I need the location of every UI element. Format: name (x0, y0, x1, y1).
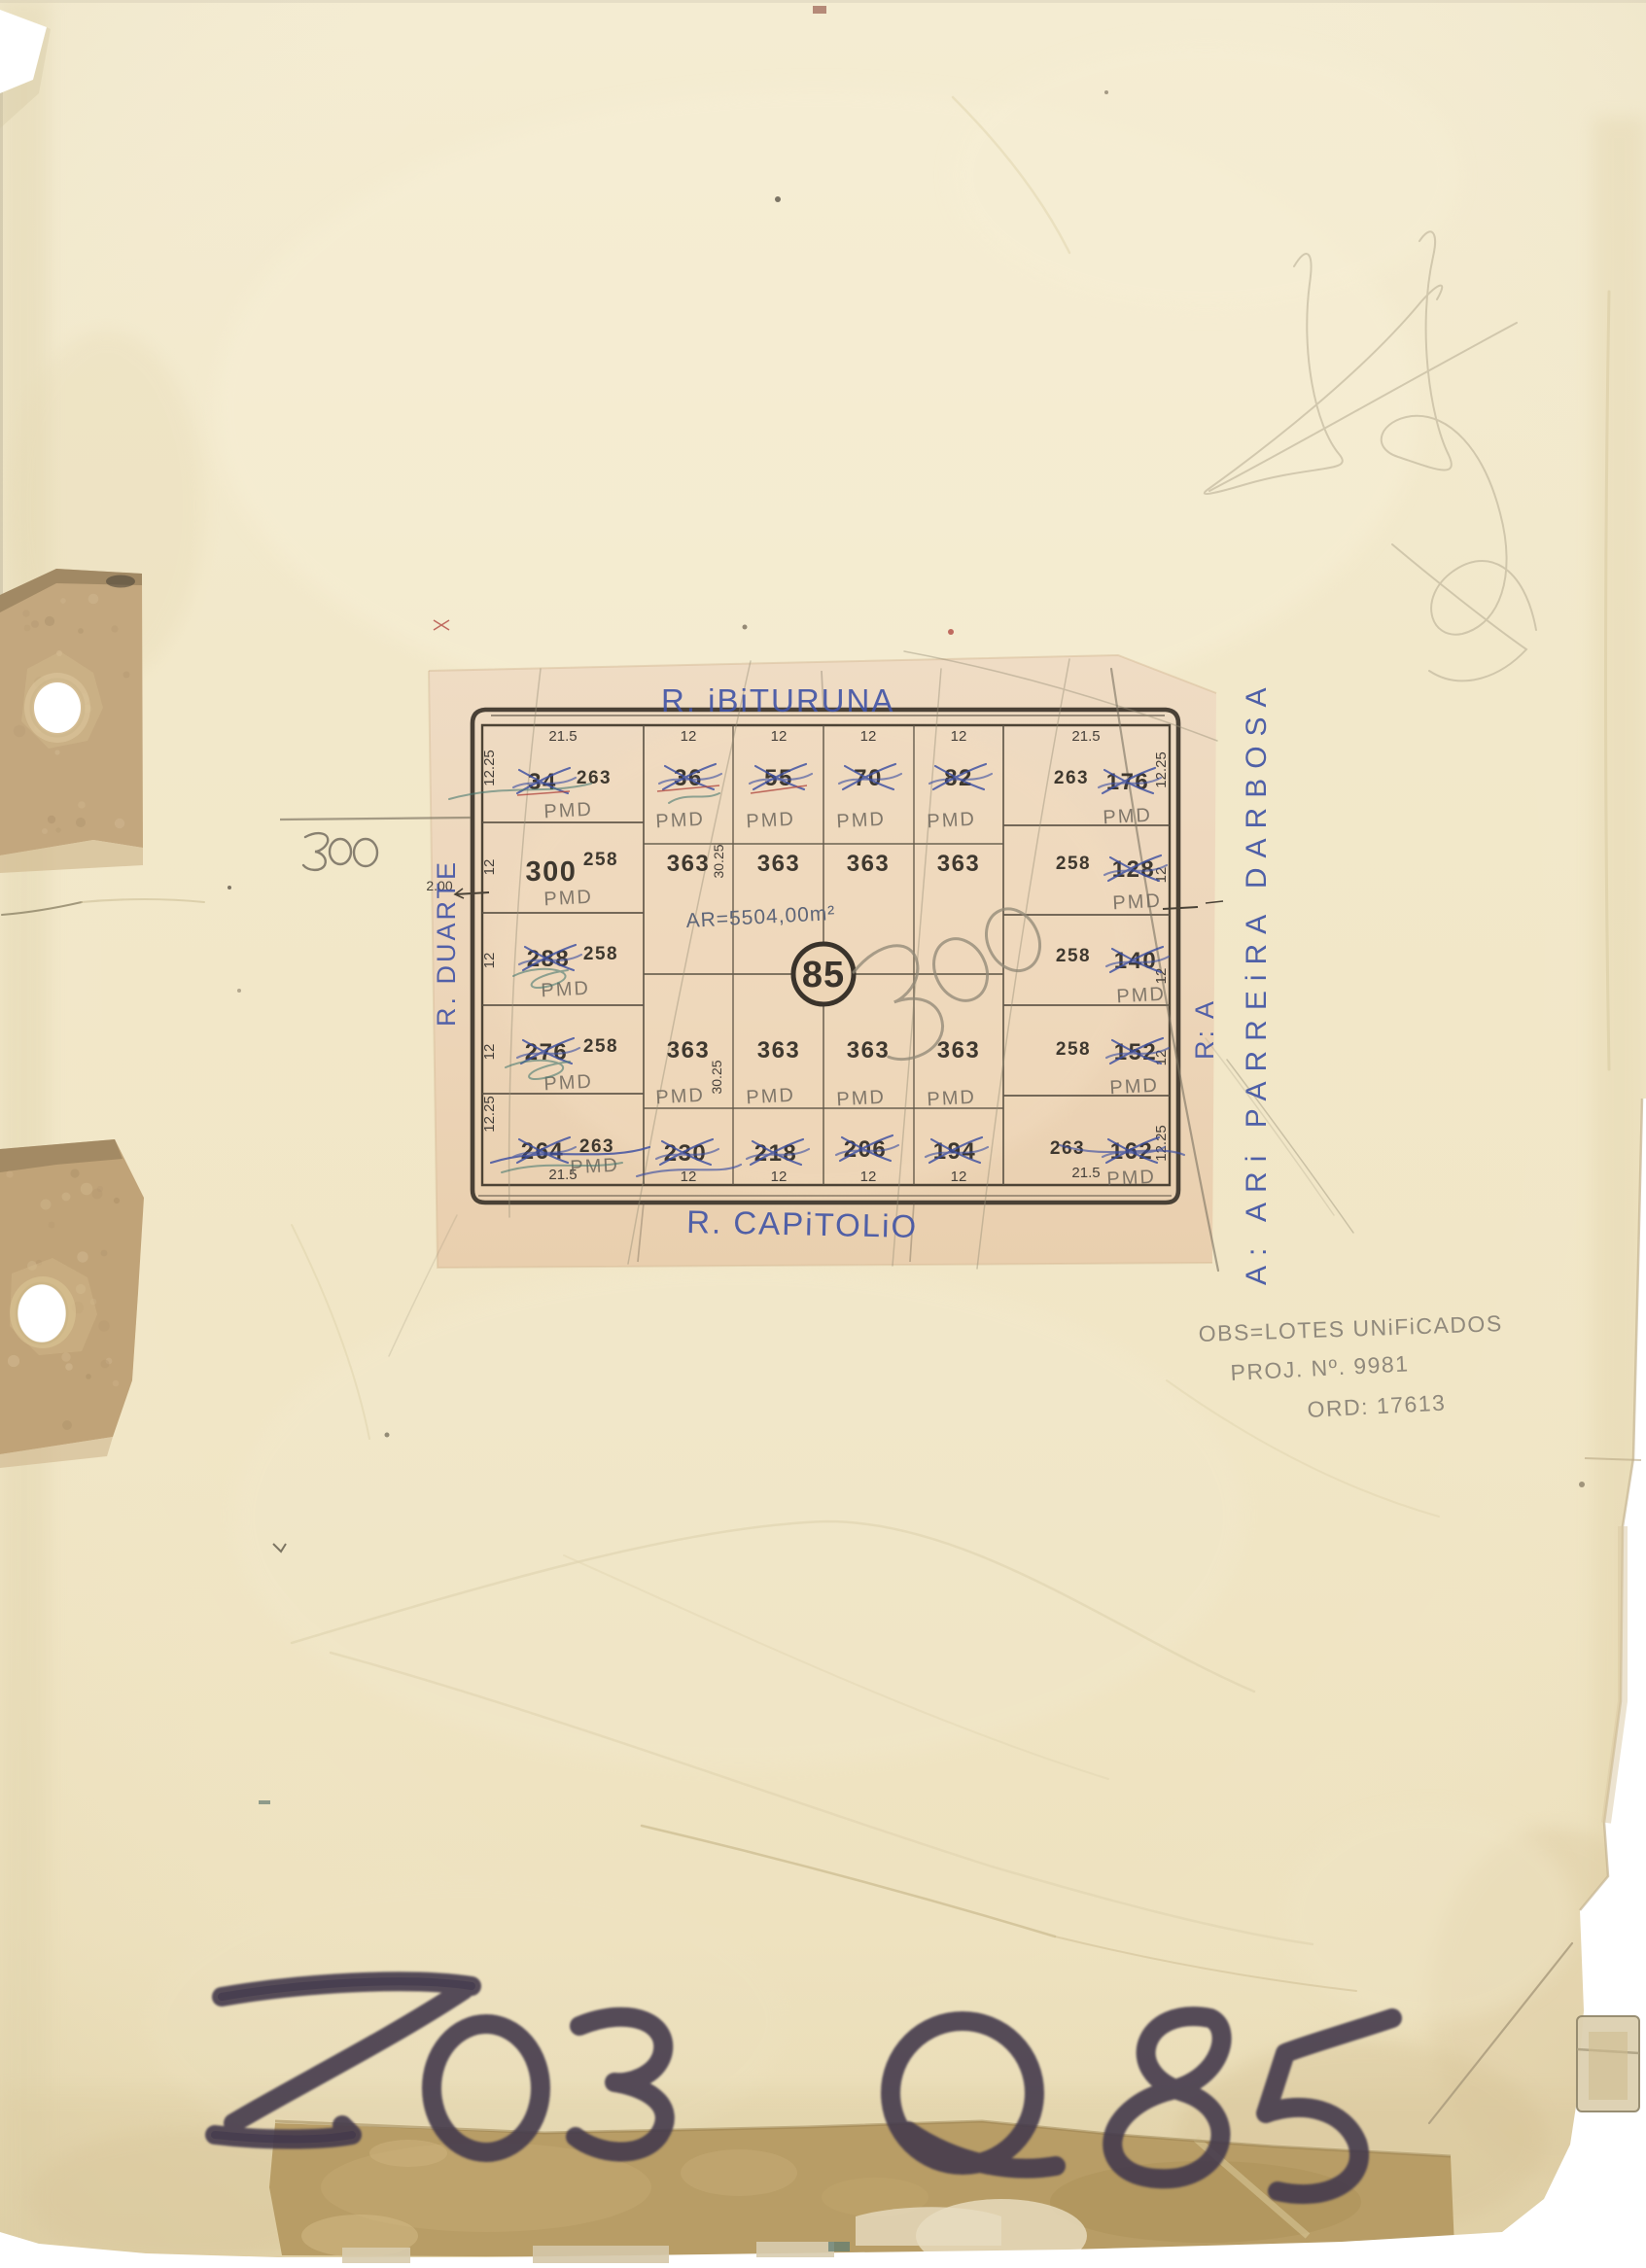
svg-text:PMD: PMD (927, 1087, 977, 1111)
svg-text:12.25: 12.25 (481, 1096, 498, 1133)
svg-text:R. DUARTE: R. DUARTE (432, 859, 461, 1027)
svg-text:A: ARi PARREiRA DARBOSA: A: ARi PARREiRA DARBOSA (1241, 678, 1273, 1285)
svg-text:12: 12 (481, 1044, 498, 1061)
svg-text:363: 363 (757, 851, 801, 877)
svg-text:PMD: PMD (746, 1085, 796, 1109)
svg-text:12: 12 (951, 1169, 967, 1185)
svg-text:12: 12 (860, 728, 877, 745)
svg-text:R. iBiTURUNA: R. iBiTURUNA (661, 682, 894, 718)
svg-text:258: 258 (583, 1036, 618, 1057)
svg-text:12: 12 (860, 1169, 877, 1185)
svg-text:PMD: PMD (570, 1155, 620, 1179)
svg-text:PMD: PMD (746, 809, 796, 833)
svg-text:12: 12 (681, 728, 697, 745)
svg-text:R. CAPiTOLiO: R. CAPiTOLiO (686, 1204, 919, 1244)
svg-text:PMD: PMD (655, 1085, 706, 1109)
svg-text:21.5: 21.5 (1071, 728, 1100, 745)
svg-text:12: 12 (771, 728, 788, 745)
svg-text:12.25: 12.25 (481, 750, 498, 786)
svg-text:R: A: R: A (1190, 998, 1219, 1060)
svg-text:PMD: PMD (655, 809, 706, 833)
svg-text:363: 363 (937, 1037, 981, 1064)
svg-text:PMD: PMD (1116, 984, 1167, 1008)
svg-text:12: 12 (481, 859, 498, 876)
svg-text:PMD: PMD (543, 887, 594, 911)
svg-text:21.5: 21.5 (1071, 1165, 1100, 1181)
svg-text:363: 363 (847, 1037, 891, 1064)
svg-text:258: 258 (583, 850, 618, 870)
svg-text:263: 263 (1054, 768, 1089, 788)
svg-text:258: 258 (1056, 1039, 1091, 1060)
svg-text:363: 363 (937, 851, 981, 877)
svg-text:PMD: PMD (543, 799, 594, 823)
svg-text:PMD: PMD (1106, 1167, 1157, 1191)
svg-text:258: 258 (1056, 946, 1091, 966)
svg-text:30.25: 30.25 (711, 844, 726, 878)
svg-text:300: 300 (526, 856, 578, 888)
svg-text:363: 363 (847, 851, 891, 877)
svg-text:363: 363 (667, 1037, 711, 1064)
svg-text:363: 363 (667, 851, 711, 877)
svg-text:PMD: PMD (1109, 1075, 1160, 1099)
svg-text:258: 258 (583, 944, 618, 964)
svg-text:12: 12 (481, 953, 498, 969)
svg-text:PMD: PMD (836, 809, 887, 833)
svg-text:PMD: PMD (543, 1071, 594, 1096)
svg-text:85: 85 (802, 955, 845, 995)
svg-text:12.25: 12.25 (1153, 1125, 1170, 1162)
svg-text:21.5: 21.5 (548, 728, 577, 745)
svg-text:PMD: PMD (836, 1087, 887, 1111)
svg-text:12: 12 (681, 1169, 697, 1185)
svg-text:363: 363 (757, 1037, 801, 1064)
svg-text:PMD: PMD (541, 978, 591, 1002)
svg-text:PMD: PMD (1112, 890, 1163, 915)
svg-text:PMD: PMD (1103, 805, 1153, 829)
svg-text:12: 12 (771, 1169, 788, 1185)
svg-text:PMD: PMD (927, 809, 977, 833)
svg-text:30.25: 30.25 (709, 1060, 724, 1094)
svg-text:263: 263 (1050, 1138, 1085, 1159)
svg-text:12: 12 (951, 728, 967, 745)
svg-text:258: 258 (1056, 854, 1091, 874)
svg-text:12.25: 12.25 (1153, 751, 1170, 788)
